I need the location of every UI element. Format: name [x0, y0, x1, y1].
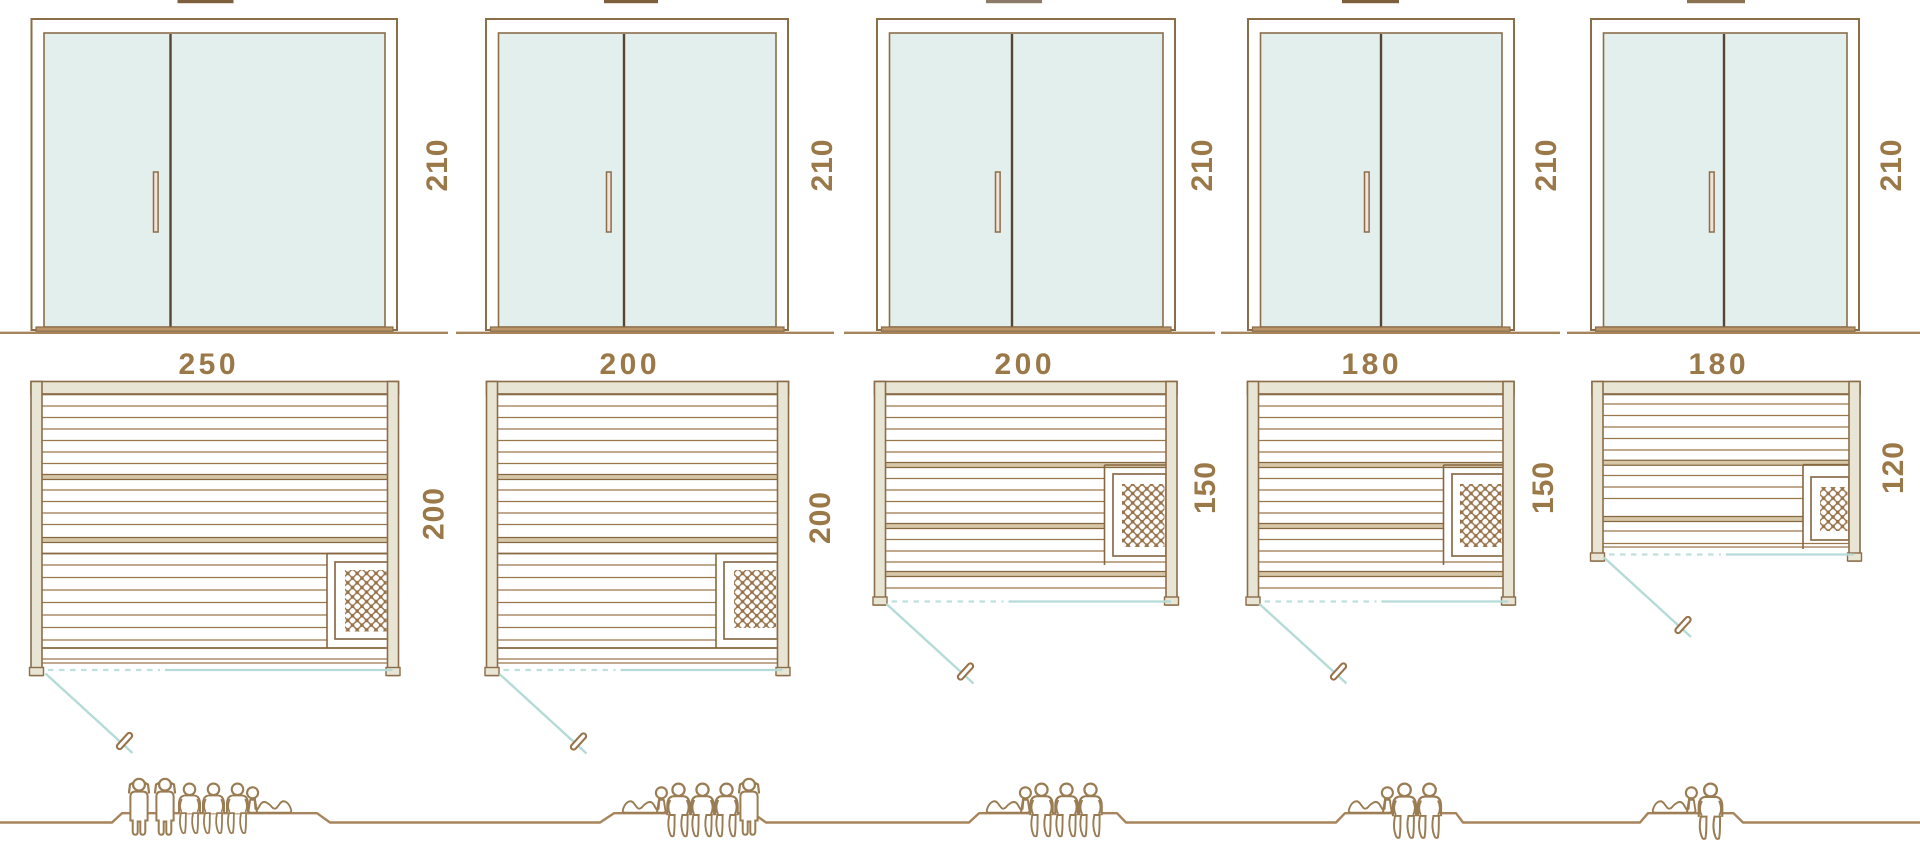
svg-text:210: 210	[1530, 140, 1563, 192]
svg-text:150: 150	[1527, 462, 1560, 514]
svg-text:250: 250	[179, 348, 236, 381]
svg-text:210: 210	[1875, 140, 1908, 192]
svg-text:180: 180	[1689, 348, 1746, 381]
svg-text:200: 200	[804, 492, 837, 544]
svg-text:200: 200	[600, 348, 657, 381]
svg-text:210: 210	[421, 140, 454, 192]
svg-text:200: 200	[417, 488, 450, 540]
svg-text:120: 120	[1877, 442, 1910, 494]
svg-text:210: 210	[1186, 140, 1219, 192]
svg-text:200: 200	[995, 348, 1052, 381]
svg-text:150: 150	[1189, 462, 1222, 514]
svg-text:180: 180	[1342, 348, 1399, 381]
svg-text:210: 210	[806, 140, 839, 192]
